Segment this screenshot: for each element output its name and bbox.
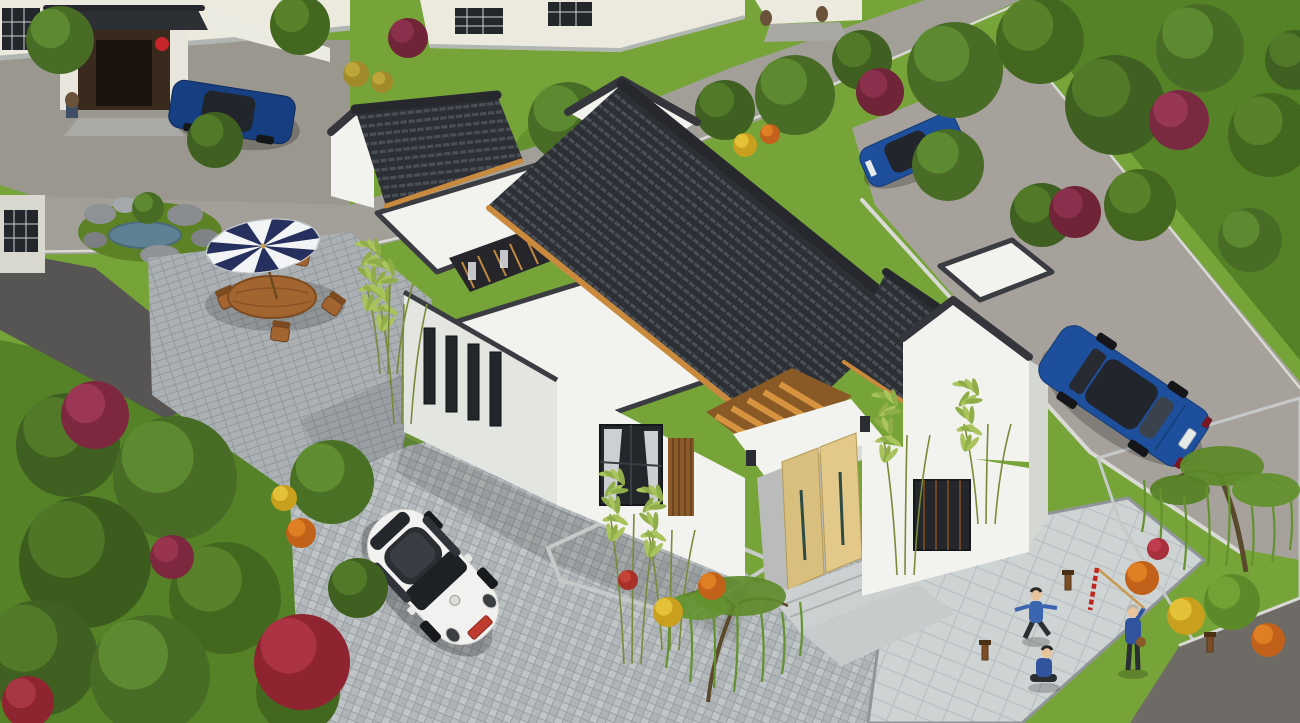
- foliage-blob: [1251, 623, 1285, 657]
- satchel: [1136, 637, 1146, 647]
- lattice-window: [548, 2, 592, 26]
- wall-lamp: [746, 450, 756, 466]
- narrow-window: [446, 336, 457, 412]
- wall-lamp: [860, 416, 870, 432]
- foliage-blob: [1065, 55, 1165, 155]
- lattice-window: [4, 210, 38, 252]
- foliage-blob: [996, 0, 1084, 84]
- curtain: [468, 262, 476, 280]
- foliage-blob: [1167, 597, 1205, 635]
- foliage-blob: [1147, 538, 1169, 560]
- foliage-blob: [290, 440, 374, 524]
- lattice-window: [455, 8, 503, 34]
- foliage-blob: [733, 133, 757, 157]
- window-slat-screen: [668, 438, 694, 516]
- pond-water: [109, 222, 181, 248]
- rock: [84, 204, 116, 224]
- narrow-window: [424, 328, 435, 404]
- foliage-blob: [150, 535, 194, 579]
- foliage-blob: [755, 55, 835, 135]
- stone-lion-figure: [65, 92, 79, 118]
- right-wing-window: [914, 480, 970, 550]
- foliage-blob: [1125, 561, 1159, 595]
- foliage-blob: [698, 572, 726, 600]
- foliage-blob: [132, 192, 164, 224]
- stone-lion-figure: [760, 10, 772, 26]
- narrow-window: [468, 344, 479, 420]
- foliage-blob: [1218, 208, 1282, 272]
- right-wing-side-wall: [1029, 360, 1048, 545]
- foliage-blob: [618, 570, 638, 590]
- foliage-blob: [371, 71, 393, 93]
- foliage-blob: [695, 80, 755, 140]
- patio-chair: [270, 320, 291, 342]
- foliage-blob: [61, 381, 129, 449]
- foliage-blob: [912, 129, 984, 201]
- lantern-icon: [155, 37, 169, 51]
- scene-canvas: [0, 0, 1300, 723]
- foliage-blob: [271, 485, 297, 511]
- foliage-blob: [653, 597, 683, 627]
- stone-lion-figure: [816, 6, 828, 22]
- gate-steps: [64, 118, 184, 136]
- foliage-blob: [1204, 574, 1260, 630]
- foliage-blob: [1049, 186, 1101, 238]
- foliage-blob: [1156, 4, 1244, 92]
- far-left-wall: [0, 195, 45, 273]
- foliage-blob: [760, 124, 780, 144]
- foliage-blob: [1149, 90, 1209, 150]
- foliage-blob: [187, 112, 243, 168]
- foliage-blob: [388, 18, 428, 58]
- foliage-blob: [856, 68, 904, 116]
- foliage-blob: [343, 61, 369, 87]
- foliage-blob: [286, 518, 316, 548]
- rendering-frame: [0, 0, 1300, 723]
- foliage-blob: [1104, 169, 1176, 241]
- foliage-blob: [26, 6, 94, 74]
- curtain: [500, 250, 508, 268]
- gate-opening: [96, 40, 152, 106]
- foliage-blob: [254, 614, 350, 710]
- neighbor-steps: [764, 22, 848, 42]
- rock: [167, 204, 203, 226]
- foliage-blob: [328, 558, 388, 618]
- narrow-window: [490, 352, 501, 426]
- foliage-blob: [907, 22, 1003, 118]
- rock: [83, 232, 107, 248]
